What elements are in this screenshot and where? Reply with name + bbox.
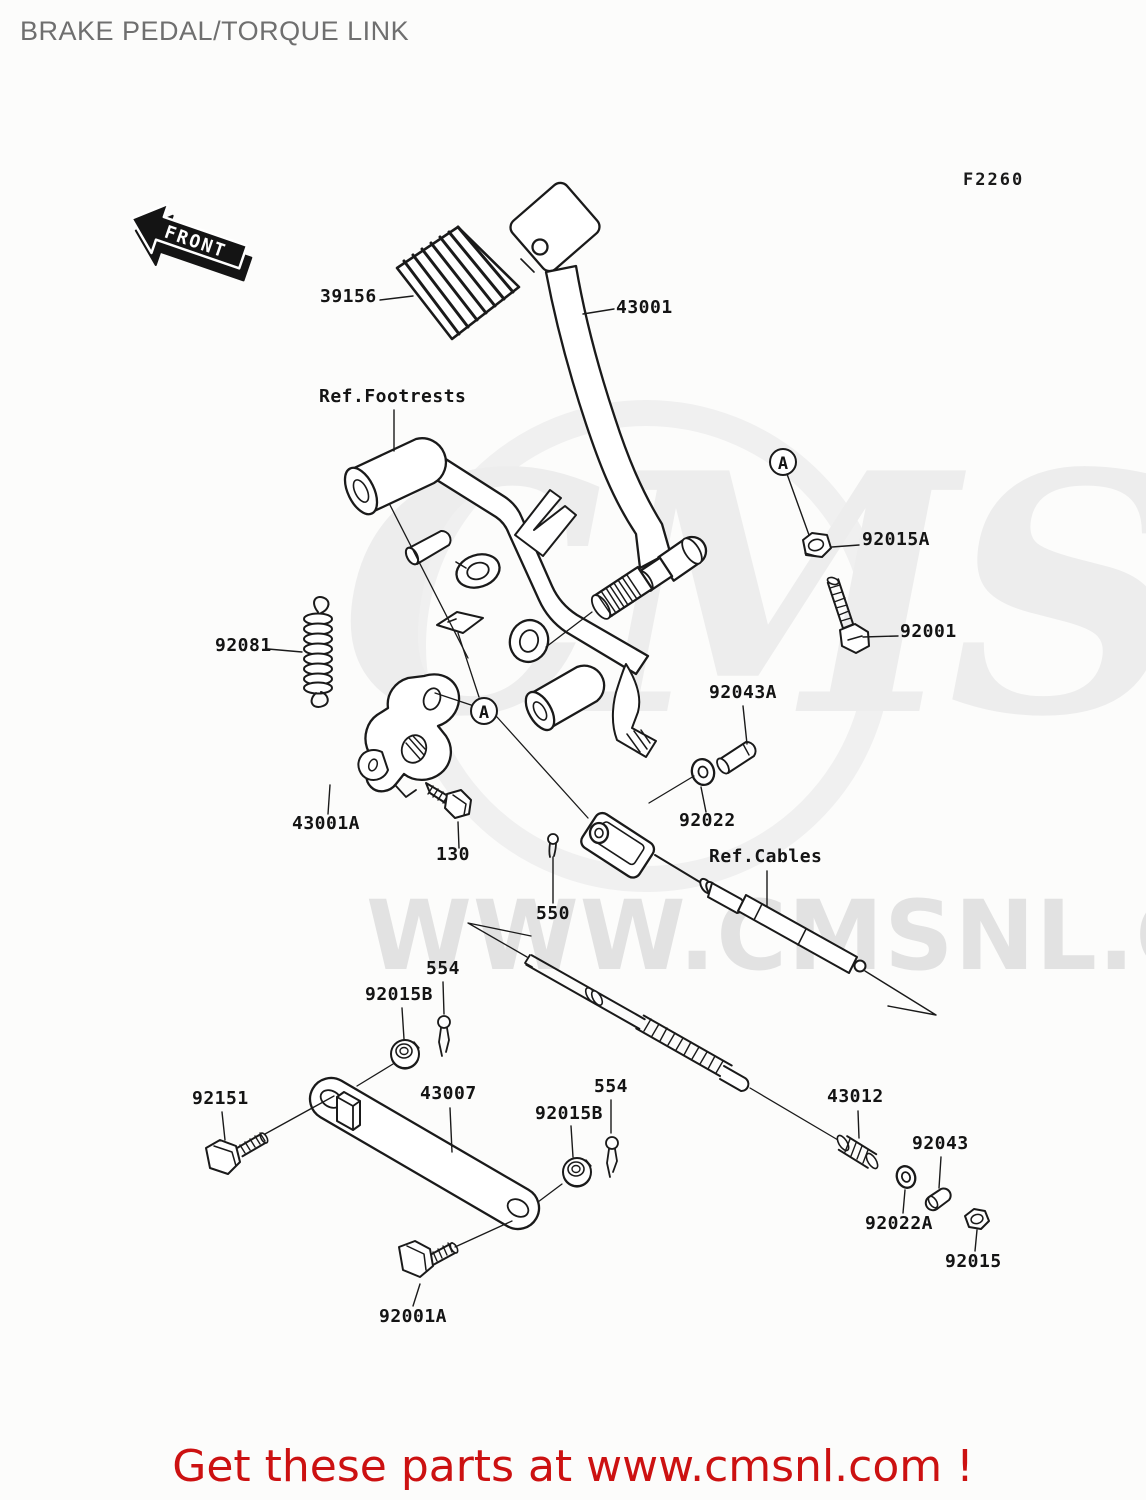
callout-130: 130	[436, 846, 470, 864]
svg-text:A: A	[479, 703, 489, 723]
part-pedal-bracket	[358, 674, 459, 797]
callout-43012: 43012	[827, 1088, 884, 1106]
callout-554-lower: 554	[594, 1078, 628, 1096]
part-brake-pedal	[507, 179, 670, 568]
footer-promo-link[interactable]: Get these parts at www.cmsnl.com !	[0, 1441, 1146, 1492]
callout-554-upper: 554	[426, 960, 460, 978]
callout-92022: 92022	[679, 812, 736, 830]
part-nut-92015	[965, 1209, 989, 1229]
callout-43007: 43007	[420, 1085, 477, 1103]
figure-code: F2260	[963, 170, 1024, 190]
part-flange-nut-lower	[563, 1158, 591, 1187]
part-bolt-92001	[827, 576, 869, 653]
callout-92001a: 92001A	[379, 1308, 447, 1326]
part-flat-tab	[437, 612, 483, 633]
callout-ref-cables: Ref.Cables	[709, 848, 822, 866]
ref-brake-cable	[655, 855, 936, 1015]
page-title: BRAKE PEDAL/TORQUE LINK	[20, 16, 409, 47]
callout-92001: 92001	[900, 623, 957, 641]
front-direction-arrow: FRONT	[120, 194, 259, 294]
part-cotter-pin-554-upper	[438, 1016, 450, 1056]
callout-92015: 92015	[945, 1253, 1002, 1271]
parts-diagram-page: CMS WWW.CMSNL.COM FRONT	[0, 0, 1146, 1500]
detail-marker-circle-left: A	[471, 698, 497, 724]
part-push-rod	[468, 923, 880, 1170]
part-large-washer	[505, 616, 553, 666]
callout-92015a: 92015A	[862, 531, 930, 549]
callout-39156: 39156	[320, 288, 377, 306]
callout-92015b-upper: 92015B	[365, 986, 433, 1004]
detail-marker-circle-right: A	[770, 449, 796, 475]
callout-92015b-lower: 92015B	[535, 1105, 603, 1123]
exploded-view-drawing: FRONT	[0, 0, 1146, 1500]
callout-92151: 92151	[192, 1090, 249, 1108]
part-cotter-pin-550	[548, 834, 558, 857]
part-stop-arm	[613, 664, 656, 757]
svg-text:A: A	[778, 454, 788, 474]
part-bolt-130	[426, 783, 471, 818]
part-bolt-92001a	[399, 1241, 459, 1277]
part-pivot-pin	[403, 531, 450, 566]
callout-92022a: 92022A	[865, 1215, 933, 1233]
callout-43001a: 43001A	[292, 815, 360, 833]
part-cable-clevis	[578, 810, 657, 881]
part-brake-pedal-pad	[397, 227, 519, 339]
callout-550: 550	[536, 905, 570, 923]
callout-43001: 43001	[616, 299, 673, 317]
part-bolt-92151	[206, 1132, 269, 1174]
part-cotter-pin-554-lower	[606, 1137, 618, 1177]
callout-92043a: 92043A	[709, 684, 777, 702]
ref-footrest-bracket	[338, 438, 648, 734]
callout-92043: 92043	[912, 1135, 969, 1153]
part-flange-nut-upper	[391, 1040, 419, 1069]
part-nut-92015a	[803, 533, 831, 557]
callout-92081: 92081	[215, 637, 272, 655]
callout-ref-footrests: Ref.Footrests	[319, 388, 466, 406]
part-return-spring	[304, 597, 332, 707]
part-washer-92022	[689, 757, 717, 788]
part-joint-pin	[715, 742, 756, 776]
part-washer-92022a	[894, 1164, 918, 1191]
part-c-washer	[452, 549, 504, 593]
part-sleeve-92043	[926, 1188, 951, 1210]
